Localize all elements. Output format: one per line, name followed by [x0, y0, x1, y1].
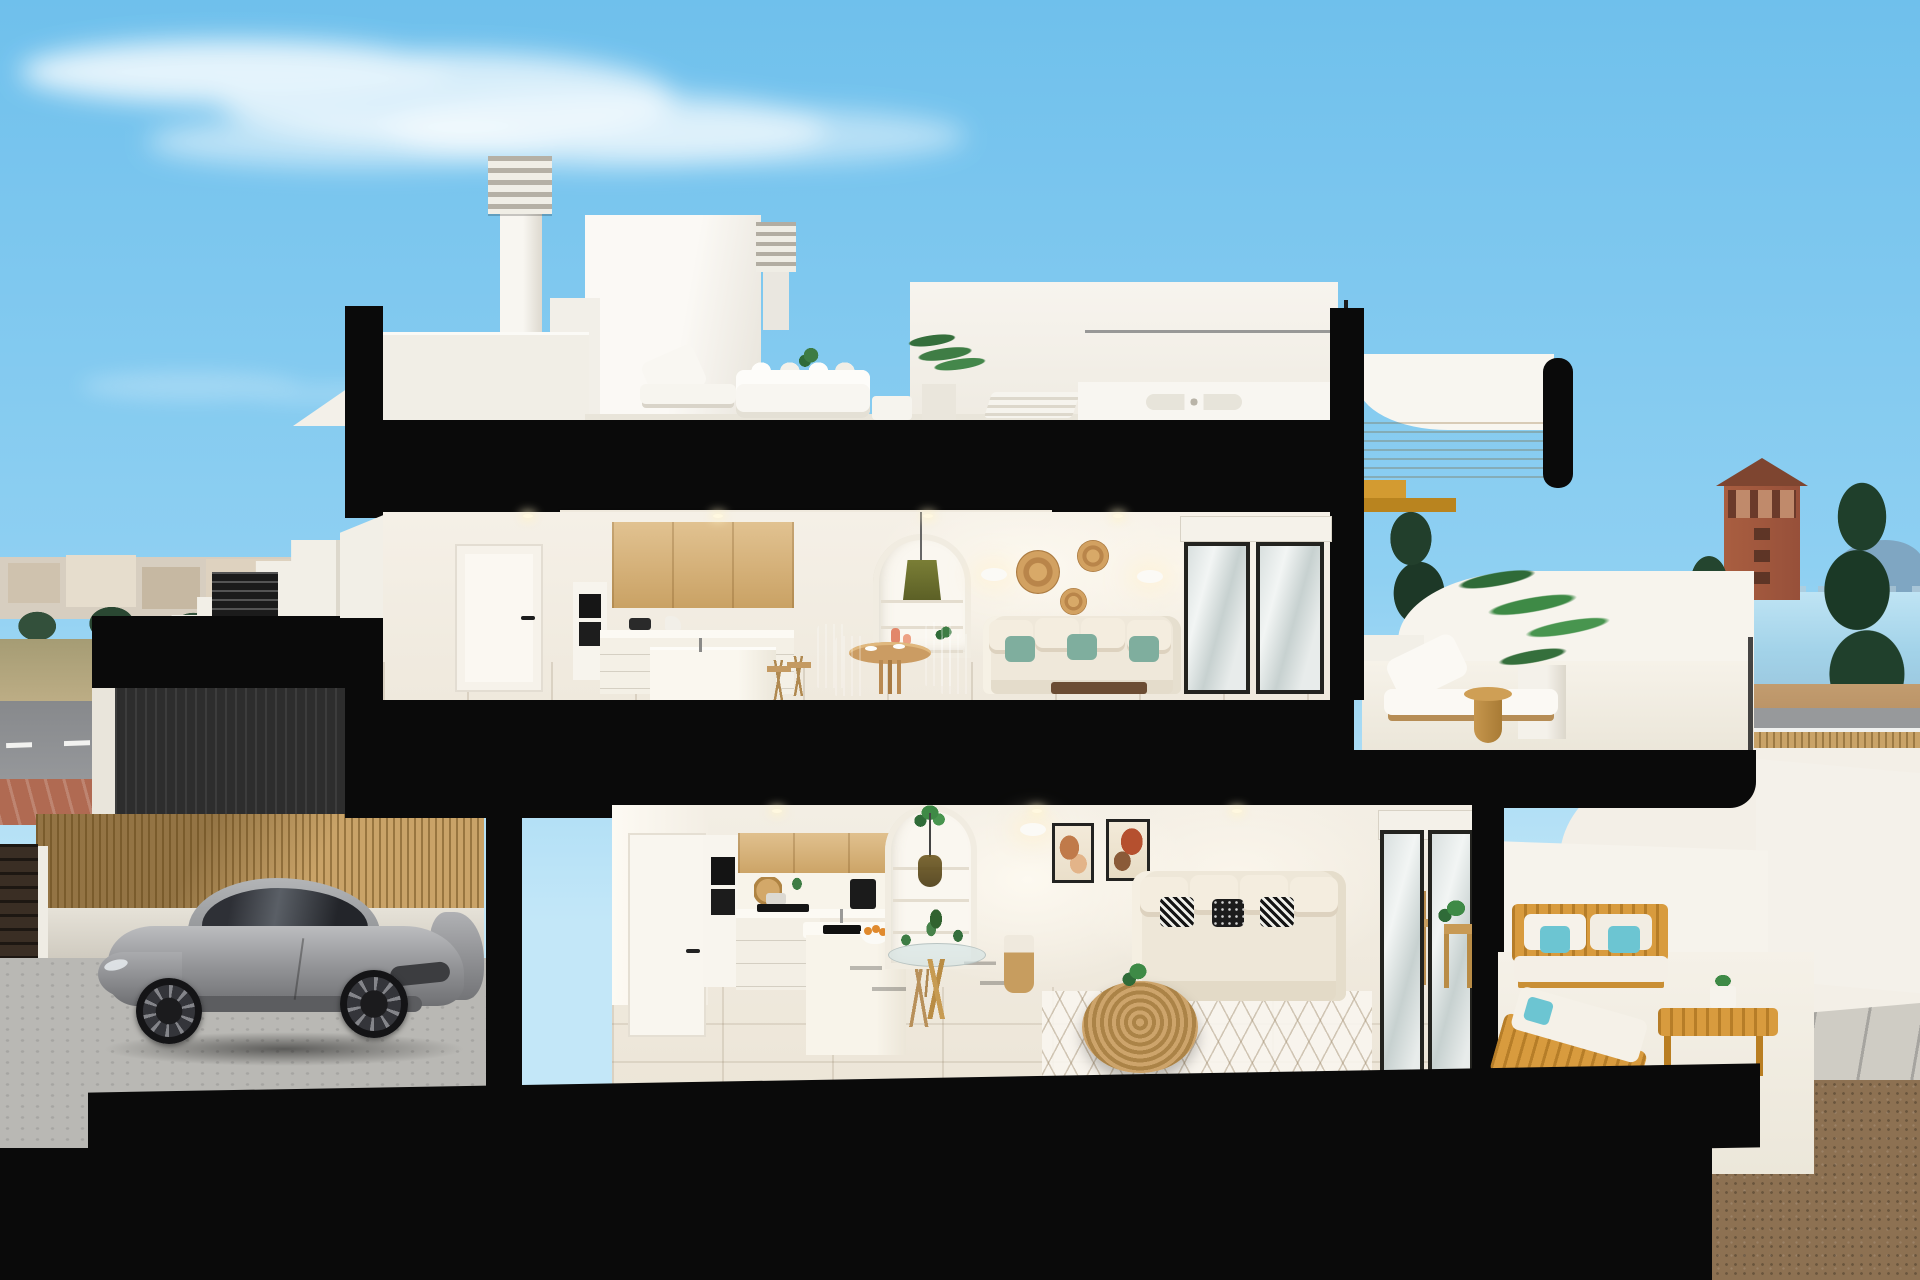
kettle	[665, 616, 681, 630]
amber-pendant-lamp	[918, 855, 942, 887]
roller-blind-box	[1180, 516, 1332, 542]
teal-pillow	[1067, 634, 1097, 660]
roof-planter	[922, 384, 956, 420]
ceiling-fan	[1146, 394, 1242, 410]
table-centerpiece-plant	[924, 905, 948, 945]
ceiling-downlight	[923, 514, 933, 518]
upper-kitchen-wood-cabinets	[612, 522, 794, 608]
island-faucet	[699, 638, 702, 652]
ceiling-downlight	[1113, 514, 1123, 518]
section-cut-mid-slab	[620, 688, 1354, 808]
dining-table-base	[879, 660, 901, 694]
wall-sconce	[1020, 823, 1046, 836]
terrace-side-table	[1474, 695, 1502, 743]
kitchen-counter	[600, 630, 794, 638]
kitchen-island	[650, 650, 776, 700]
tower-roof	[1716, 458, 1808, 486]
stair-parapet-wedge	[340, 514, 386, 618]
aqua-pillow	[1540, 926, 1570, 953]
roof-outdoor-sofa	[736, 370, 870, 418]
door-handle	[686, 949, 700, 953]
green-pendant-lamp	[903, 560, 941, 600]
coffee-table-plant	[1118, 957, 1158, 993]
car-front-wheel	[136, 978, 202, 1044]
ceiling-downlight	[713, 514, 723, 518]
roof-side-table	[872, 396, 912, 420]
section-cut-garage-wall	[486, 688, 522, 1140]
plant-sprig	[788, 875, 806, 897]
section-cut-right-wall	[1330, 308, 1364, 700]
section-cut-left-wall	[345, 306, 383, 518]
teal-pillow	[1005, 636, 1035, 662]
upper-sliding-glass-door	[1180, 516, 1330, 694]
patterned-pillow	[1212, 899, 1244, 927]
roof-lounge-chair-base	[640, 384, 736, 404]
roof-terrace-furniture	[560, 338, 1350, 424]
terrace-plant	[1434, 892, 1478, 928]
bar-stool	[787, 656, 811, 696]
wall-sconce	[1137, 570, 1163, 583]
cloud-large	[20, 40, 450, 104]
upper-apartment-interior	[383, 512, 1330, 700]
white-planter	[1710, 986, 1736, 1008]
checkered-pillow	[1160, 897, 1194, 927]
sofa-cushion	[1290, 877, 1338, 917]
checkered-pillow	[1260, 897, 1294, 927]
aqua-pillow	[1608, 926, 1640, 953]
basket-with-throw	[1004, 935, 1034, 993]
ceiling-downlight	[1032, 809, 1042, 813]
glass-pane	[1184, 542, 1250, 694]
chimney-louver-cap	[756, 222, 796, 272]
plate	[893, 644, 905, 649]
pendant-cord	[920, 512, 922, 564]
dining-table-wood-legs	[902, 959, 972, 1019]
niche-shelf	[893, 899, 969, 902]
coffee-table	[1051, 682, 1147, 694]
induction-hob	[757, 904, 809, 912]
built-in-oven	[579, 622, 601, 646]
cloud-small	[80, 372, 300, 400]
chimney-shaft	[763, 270, 789, 330]
stair-curved-soffit	[1358, 354, 1554, 430]
glass-balustrade-edge	[1748, 637, 1753, 751]
teal-pillow	[1129, 636, 1159, 662]
dining-chair	[941, 634, 973, 694]
espresso-machine	[850, 879, 876, 909]
glass-railing	[1085, 330, 1347, 333]
glass-pane	[1256, 542, 1324, 694]
roof-table-plant	[796, 344, 826, 372]
stair-section-cut	[1543, 358, 1573, 488]
cooking-pot	[629, 618, 651, 630]
island-faucet	[840, 909, 843, 923]
woven-wall-basket	[1077, 540, 1109, 572]
ceiling-downlight	[1232, 809, 1242, 813]
woven-wall-basket	[1060, 588, 1087, 615]
built-in-oven	[579, 594, 601, 618]
roof-parapet	[383, 332, 589, 424]
table-slat-top	[1658, 1008, 1778, 1036]
dining-chair	[835, 636, 867, 696]
lower-kitchen-wood-cabinets	[738, 833, 904, 873]
framed-abstract-art	[1052, 823, 1094, 883]
tower-windows	[1754, 528, 1770, 588]
door-handle	[521, 616, 535, 620]
built-in-oven	[711, 857, 735, 885]
pendant-cord	[929, 813, 931, 857]
dining-chair	[872, 943, 906, 1039]
section-cut-foundation	[0, 1148, 1712, 1280]
niche-shelf	[881, 600, 963, 603]
rattan-coffee-table	[1082, 981, 1198, 1073]
ceiling-downlight	[523, 514, 533, 518]
car-rear-wheel	[340, 970, 408, 1038]
lower-interior-door	[628, 833, 706, 1037]
architectural-section-render	[0, 0, 1920, 1280]
chimney-louver-cap	[488, 156, 552, 214]
woven-wall-basket	[1016, 550, 1060, 594]
ceiling-downlight	[772, 809, 782, 813]
roof-sloped-wall	[293, 386, 351, 426]
section-cut-entry-slab	[92, 616, 350, 688]
sports-car	[100, 868, 482, 1068]
roof-sun-loungers	[984, 392, 1080, 418]
wall-sconce	[981, 568, 1007, 581]
upper-terrace	[1362, 495, 1754, 757]
section-cut-roof-slab	[383, 420, 1345, 512]
stair-wood-stringer	[1356, 422, 1544, 482]
entry-slatted-gate	[115, 688, 345, 818]
wood-side-table	[1444, 924, 1472, 988]
terrace-side-table-top	[1464, 687, 1512, 701]
lower-apartment-interior	[612, 805, 1478, 1105]
built-in-oven	[711, 889, 735, 915]
